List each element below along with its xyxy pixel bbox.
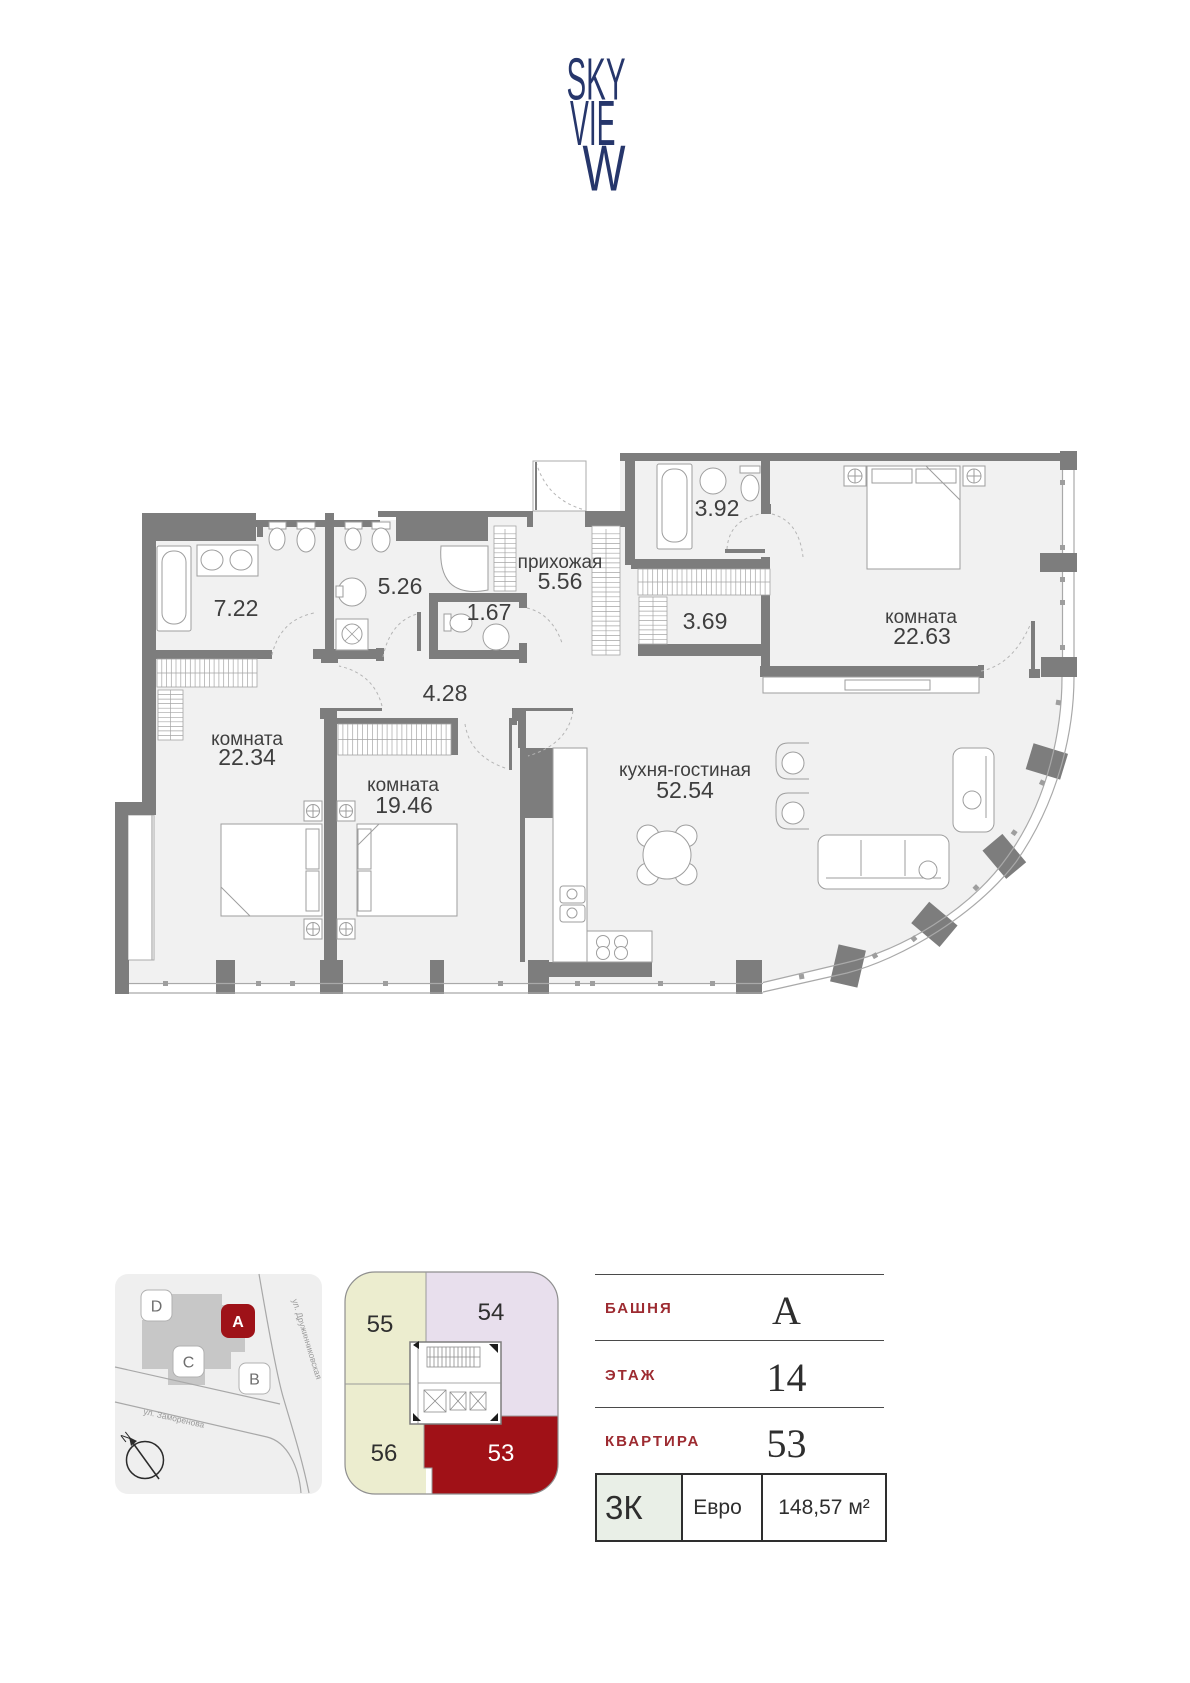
svg-text:5.56: 5.56 — [538, 568, 583, 594]
svg-text:5.26: 5.26 — [378, 573, 423, 599]
svg-text:53: 53 — [488, 1440, 515, 1467]
svg-text:7.22: 7.22 — [214, 595, 259, 621]
svg-text:54: 54 — [478, 1299, 505, 1326]
svg-text:22.34: 22.34 — [218, 744, 276, 770]
svg-text:56: 56 — [371, 1440, 398, 1467]
svg-text:52.54: 52.54 — [656, 777, 714, 803]
svg-text:22.63: 22.63 — [893, 623, 951, 649]
svg-text:3.69: 3.69 — [683, 608, 728, 634]
svg-text:3.92: 3.92 — [695, 495, 740, 521]
svg-text:1.67: 1.67 — [467, 599, 512, 625]
svg-text:55: 55 — [367, 1311, 394, 1338]
svg-text:D: D — [151, 1299, 163, 1316]
svg-text:19.46: 19.46 — [375, 792, 433, 818]
svg-text:B: B — [249, 1372, 260, 1389]
svg-text:4.28: 4.28 — [423, 680, 468, 706]
svg-text:W: W — [583, 132, 626, 205]
svg-text:C: C — [183, 1355, 195, 1372]
svg-text:A: A — [232, 1314, 244, 1331]
